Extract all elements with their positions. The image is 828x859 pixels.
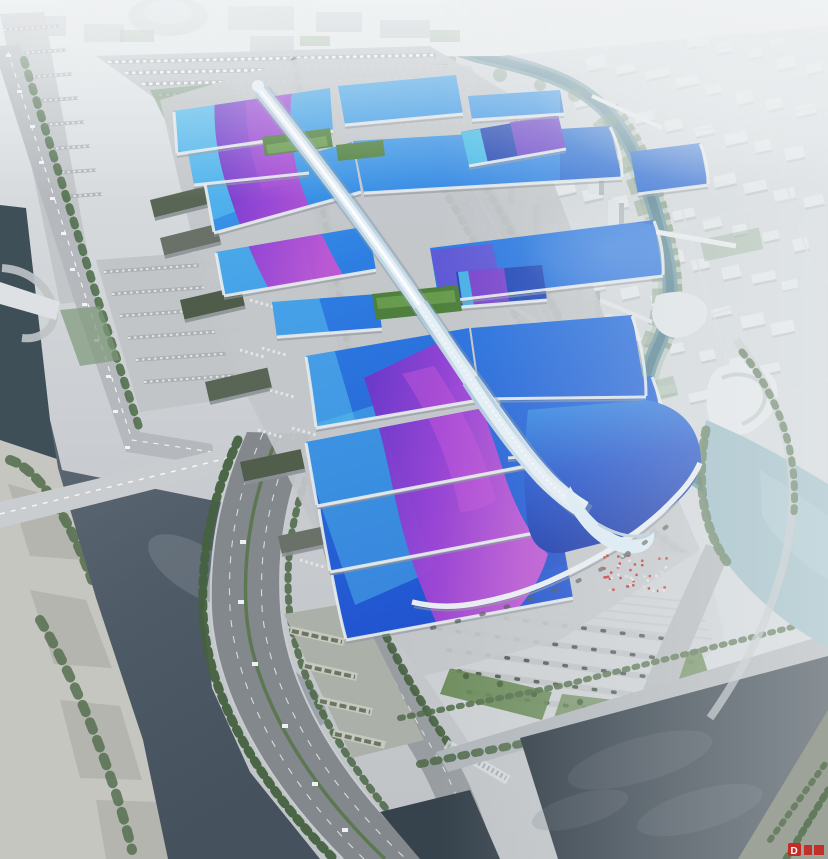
svg-text:D: D [791, 846, 798, 857]
